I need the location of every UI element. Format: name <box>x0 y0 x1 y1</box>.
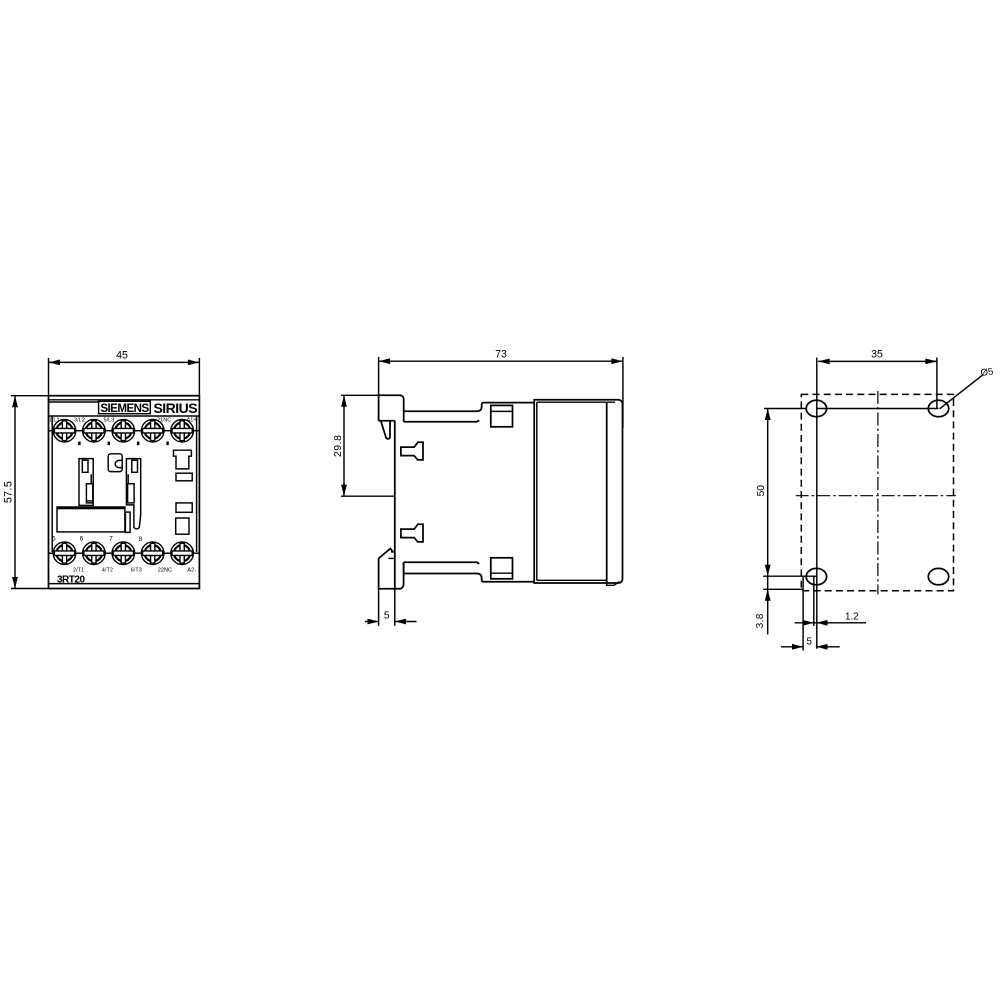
svg-text:50: 50 <box>756 485 767 497</box>
svg-text:35: 35 <box>871 349 883 361</box>
svg-text:5: 5 <box>807 636 813 647</box>
svg-text:7: 7 <box>109 536 113 543</box>
svg-text:3.8: 3.8 <box>755 613 766 628</box>
svg-text:SIEMENS: SIEMENS <box>100 402 149 415</box>
svg-text:22NC: 22NC <box>158 567 172 573</box>
svg-text:3/L2: 3/L2 <box>74 418 85 424</box>
svg-text:8: 8 <box>139 536 143 543</box>
svg-text:2/T1: 2/T1 <box>73 567 84 573</box>
svg-text:4/T2: 4/T2 <box>102 567 113 573</box>
svg-text:73: 73 <box>495 349 507 361</box>
svg-text:A2-: A2- <box>187 567 196 573</box>
svg-text:1.2: 1.2 <box>845 612 859 623</box>
svg-text:6/T3: 6/T3 <box>131 567 142 573</box>
svg-text:6: 6 <box>80 536 84 543</box>
svg-text:5/L3: 5/L3 <box>104 418 115 424</box>
svg-text:57.5: 57.5 <box>3 481 15 503</box>
svg-text:SIRIUS: SIRIUS <box>153 400 197 416</box>
svg-text:5: 5 <box>52 536 56 543</box>
svg-text:5: 5 <box>384 610 390 621</box>
svg-text:45: 45 <box>116 350 128 362</box>
svg-text:Ø5: Ø5 <box>980 366 994 379</box>
svg-text:29.8: 29.8 <box>333 435 344 457</box>
